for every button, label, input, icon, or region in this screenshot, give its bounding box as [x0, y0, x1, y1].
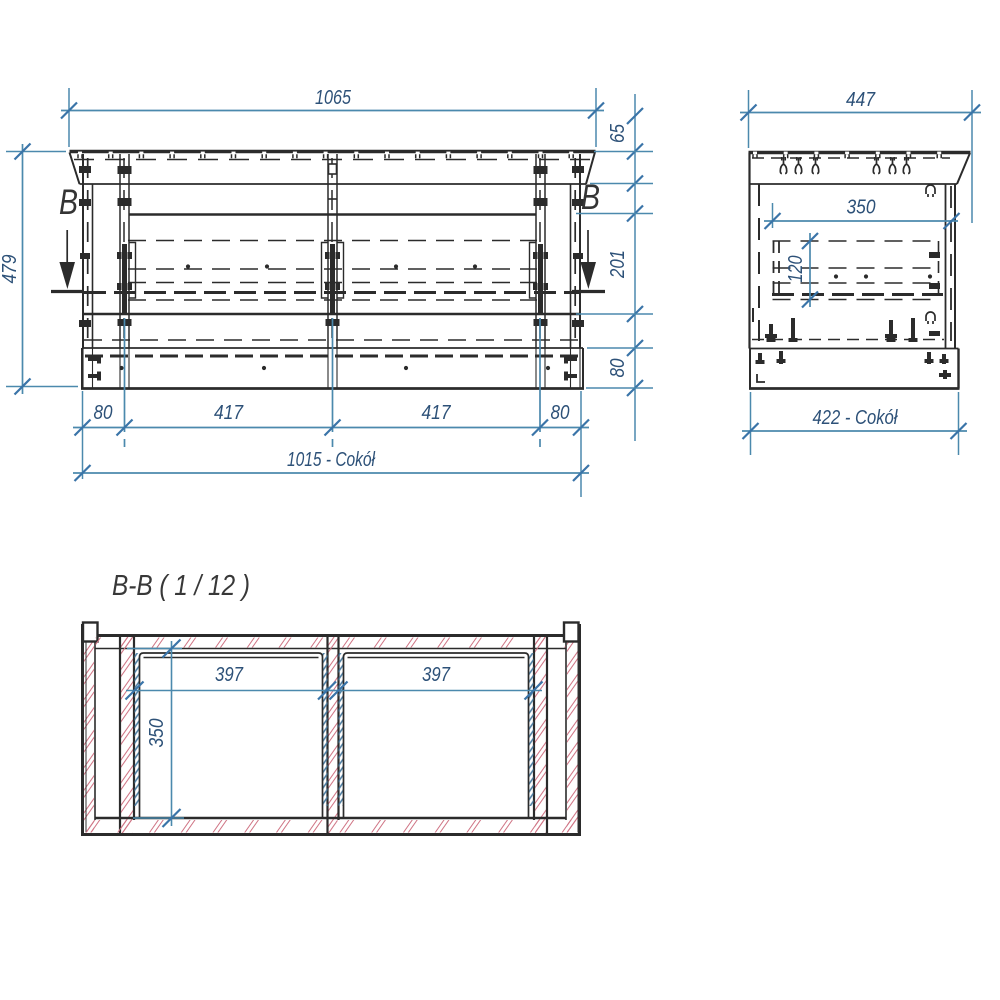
svg-text:80: 80 [606, 358, 629, 377]
svg-text:201: 201 [606, 250, 629, 279]
svg-text:397: 397 [215, 663, 244, 686]
svg-text:479: 479 [0, 255, 21, 284]
svg-text:B: B [59, 183, 78, 222]
svg-text:422 - Cokół: 422 - Cokół [813, 406, 899, 429]
svg-text:350: 350 [847, 196, 876, 219]
svg-text:80: 80 [551, 401, 570, 424]
svg-text:65: 65 [606, 124, 629, 143]
svg-text:120: 120 [784, 255, 807, 282]
svg-text:B-B ( 1 / 12 ): B-B ( 1 / 12 ) [112, 570, 250, 602]
svg-text:1015 - Cokół: 1015 - Cokół [287, 448, 376, 471]
svg-text:1065: 1065 [315, 86, 351, 109]
svg-text:417: 417 [214, 401, 244, 424]
svg-text:417: 417 [422, 401, 452, 424]
svg-text:447: 447 [846, 88, 876, 111]
svg-text:397: 397 [422, 663, 451, 686]
svg-text:80: 80 [94, 401, 113, 424]
svg-text:350: 350 [145, 718, 168, 747]
